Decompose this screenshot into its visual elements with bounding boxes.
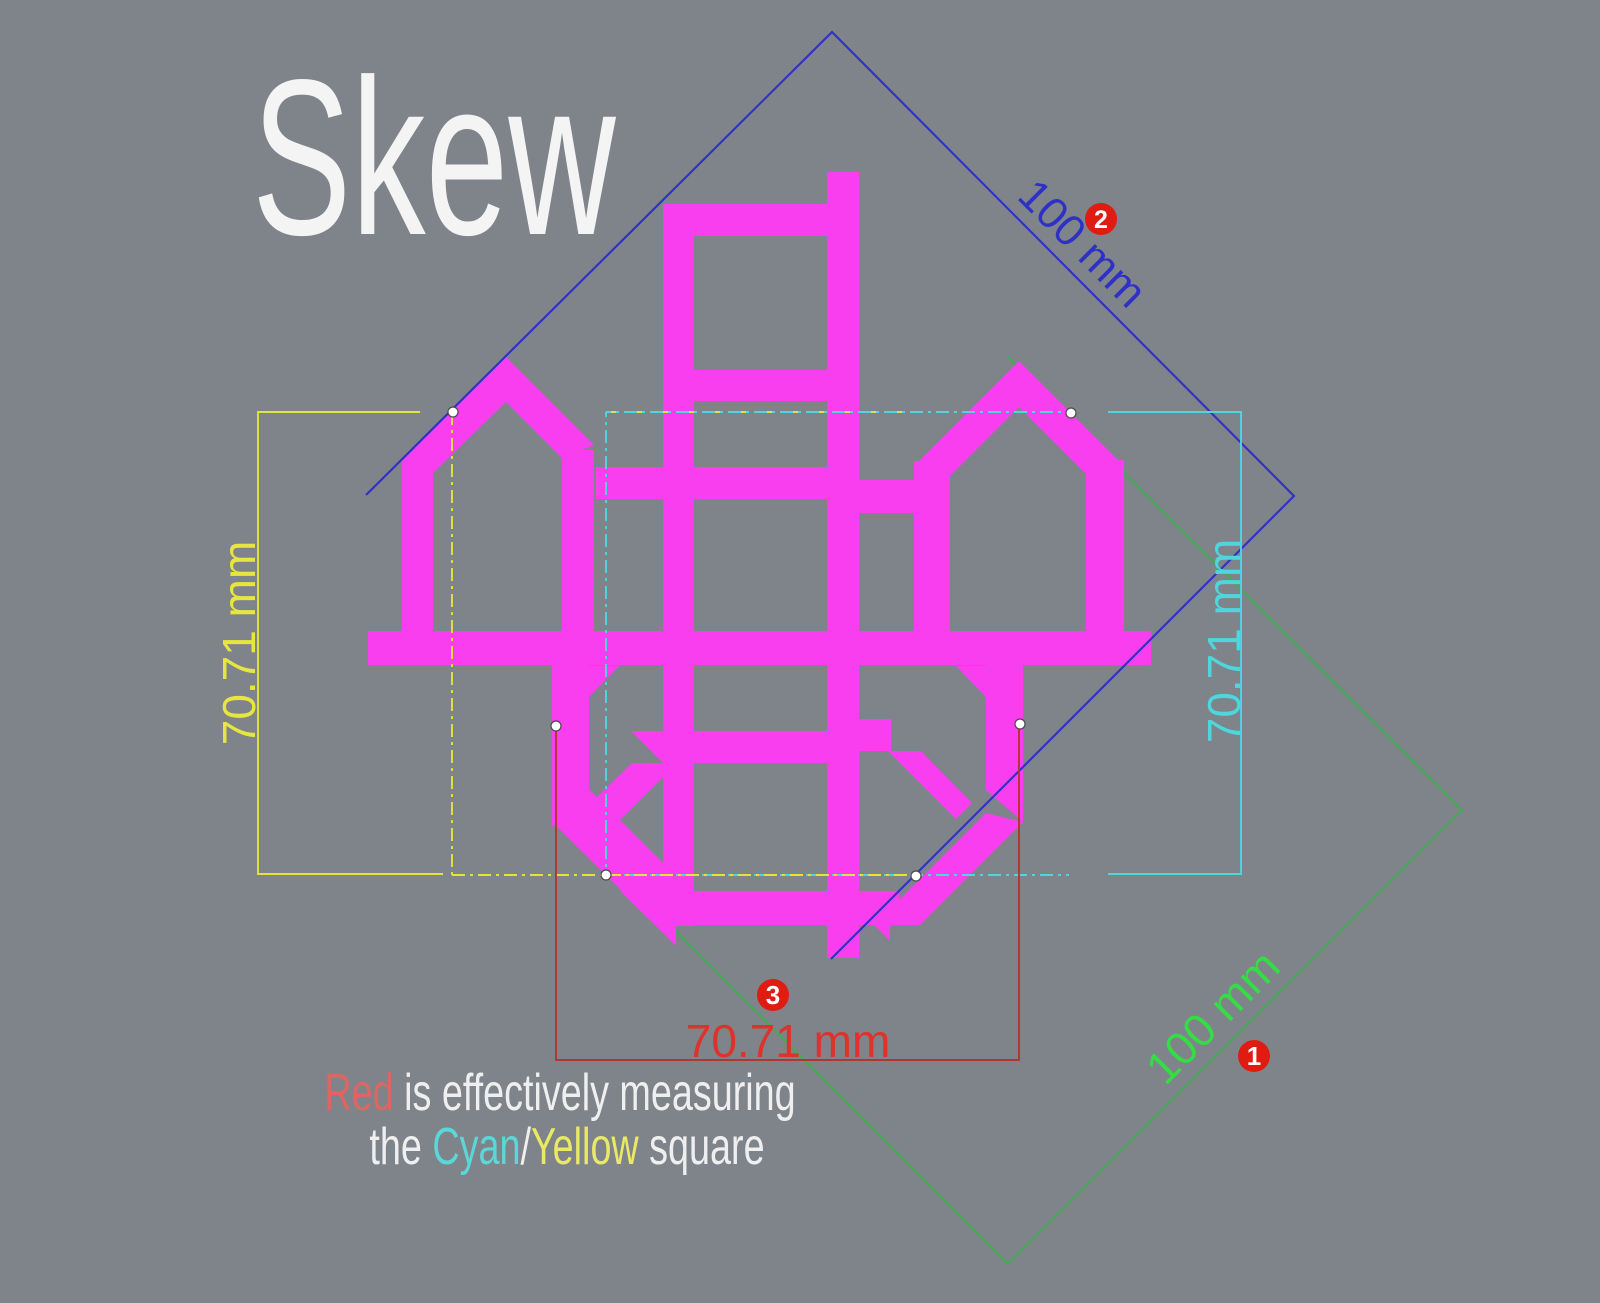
svg-text:70.71 mm: 70.71 mm [686,1015,891,1067]
svg-text:Red is effectively measuring: Red is effectively measuring [324,1063,795,1121]
svg-text:the Cyan/Yellow square: the Cyan/Yellow square [369,1117,764,1175]
svg-text:3: 3 [766,980,780,1010]
svg-text:2: 2 [1094,206,1108,234]
svg-text:100 mm: 100 mm [1009,170,1156,317]
svg-text:70.71 mm: 70.71 mm [213,541,265,746]
svg-text:100 mm: 100 mm [1136,940,1290,1094]
svg-text:Skew: Skew [252,34,616,282]
svg-text:1: 1 [1247,1041,1261,1071]
svg-text:70.71 mm: 70.71 mm [1198,539,1250,744]
